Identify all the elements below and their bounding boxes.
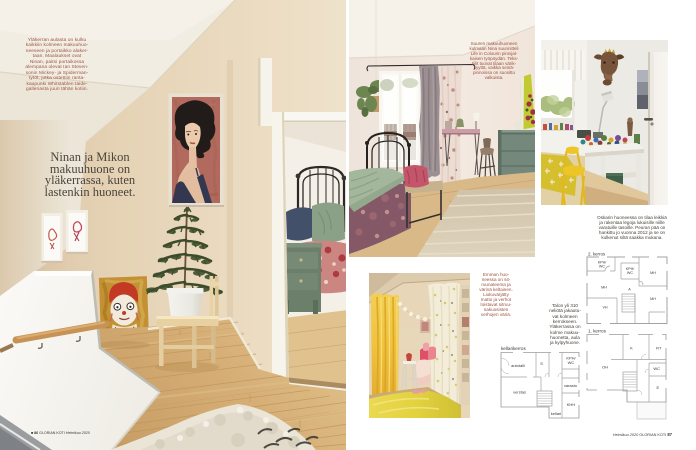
svg-text:MH: MH <box>650 271 656 275</box>
svg-text:WC: WC <box>627 271 633 275</box>
svg-text:MH: MH <box>650 297 656 301</box>
svg-text:K: K <box>630 346 633 351</box>
svg-text:varasto: varasto <box>564 383 578 388</box>
svg-text:VH: VH <box>602 306 607 310</box>
svg-text:KHH: KHH <box>567 402 576 407</box>
svg-text:kellarikerros: kellarikerros <box>501 346 526 351</box>
svg-text:2. kerros: 2. kerros <box>588 252 606 257</box>
svg-text:RT: RT <box>656 346 662 351</box>
svg-text:MH: MH <box>601 286 607 290</box>
svg-text:1. kerros: 1. kerros <box>588 329 607 334</box>
svg-text:WC: WC <box>653 366 660 371</box>
svg-text:WC: WC <box>568 360 575 365</box>
svg-text:autotalli: autotalli <box>511 363 525 368</box>
svg-text:WC: WC <box>599 265 605 269</box>
svg-text:verstas: verstas <box>513 390 526 395</box>
svg-text:OH: OH <box>602 365 608 370</box>
svg-text:S: S <box>540 361 543 366</box>
svg-text:kellari: kellari <box>551 411 562 416</box>
svg-text:E: E <box>656 385 659 390</box>
